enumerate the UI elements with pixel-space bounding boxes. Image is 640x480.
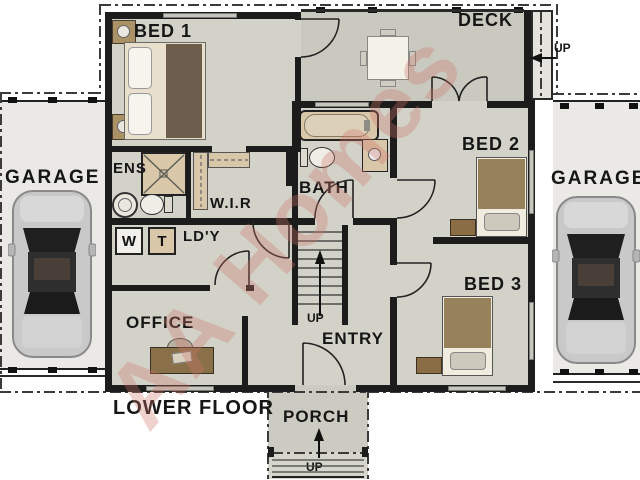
bed2-blanket xyxy=(478,159,525,209)
laundry-tub: T xyxy=(148,227,176,255)
deck-chair xyxy=(360,51,367,66)
up-label-porch-steps: UP xyxy=(306,461,323,473)
deck-table xyxy=(367,36,409,80)
deck-stair-strip xyxy=(531,10,553,100)
car-top-view-right xyxy=(552,194,640,371)
wall-ens-wir-divider xyxy=(186,152,191,222)
car-top-view-left xyxy=(8,188,96,365)
pier-post xyxy=(8,367,17,373)
pier-post xyxy=(629,103,638,109)
deck-chair xyxy=(409,51,416,66)
bed3-side-table xyxy=(416,357,442,374)
pier-post xyxy=(8,97,17,103)
window-bed3-rear xyxy=(448,386,506,391)
bed3-blanket xyxy=(444,298,491,348)
pier-post xyxy=(560,103,569,109)
bed1-blanket xyxy=(166,44,202,138)
wall-bed1-right-stub xyxy=(295,12,301,20)
window-bed1 xyxy=(163,13,237,18)
room-label-entry: ENTRY xyxy=(322,330,384,347)
wall-deck-bottom-right xyxy=(487,101,531,108)
window-bath xyxy=(315,102,369,107)
pier-post xyxy=(48,367,57,373)
porch-step-line xyxy=(272,452,366,454)
bed3-pillow xyxy=(450,352,486,370)
wall-bath-right xyxy=(390,101,397,178)
window-office xyxy=(146,386,214,391)
roofline-garage-right-top xyxy=(553,93,640,95)
roofline-left-edge xyxy=(0,92,2,391)
up-label-deck-stairs: UP xyxy=(554,42,571,54)
room-label-bed2: BED 2 xyxy=(462,135,520,153)
bath-tap xyxy=(364,120,370,131)
wall-ldy-office-divider xyxy=(105,285,210,291)
wall-outer-bottom-right xyxy=(356,385,535,392)
porch-jamb-left xyxy=(268,447,274,457)
room-label-wir: W.I.R xyxy=(210,196,252,211)
plan-title-lower-floor: LOWER FLOOR xyxy=(113,398,274,418)
pier-post xyxy=(88,97,97,103)
porch-outline-right xyxy=(367,387,369,479)
bed1-pillow xyxy=(128,47,152,89)
room-label-porch: PORCH xyxy=(283,408,349,425)
roofline-left-upper xyxy=(99,4,101,94)
bed1-pillow xyxy=(128,93,152,135)
porch-jamb-right xyxy=(362,447,368,457)
pier-post xyxy=(48,97,57,103)
bed2-pillow xyxy=(484,213,520,231)
deck-stair-rail-left xyxy=(531,10,533,100)
deck-stair-centerline xyxy=(540,12,542,96)
wall-stairs-top-a xyxy=(292,218,315,225)
deck-stair-cap-top xyxy=(531,10,553,12)
deck-chair xyxy=(380,29,396,36)
pier-post xyxy=(88,367,97,373)
washer-letter: W xyxy=(122,233,136,250)
bedside-lamp xyxy=(117,25,130,38)
pier-post xyxy=(595,103,604,109)
wall-ens-bottom xyxy=(105,218,292,225)
wall-bed1-bottom-a xyxy=(105,146,212,152)
wall-bed3-left xyxy=(390,297,397,385)
garage-left-bottom-line xyxy=(0,375,105,377)
room-label-bed1: BED 1 xyxy=(134,22,192,40)
roofline-garage-left-top xyxy=(0,92,100,94)
wardrobe-vertical xyxy=(193,152,208,210)
window-bed2 xyxy=(529,150,534,214)
ens-basin-bowl xyxy=(118,198,132,212)
roofline-top xyxy=(100,4,555,6)
tub-letter: T xyxy=(157,233,166,250)
room-label-bed3: BED 3 xyxy=(464,275,522,293)
window-bed3-side xyxy=(529,302,534,360)
washing-machine: W xyxy=(115,227,143,255)
bath-vanity-basin xyxy=(368,148,381,161)
ens-toilet-bowl xyxy=(140,194,164,215)
wall-bed2-left-lower xyxy=(390,218,397,265)
deck-edge-right xyxy=(524,10,531,101)
wall-office-door-jamb xyxy=(246,285,254,291)
ens-toilet-tank xyxy=(164,196,173,213)
wall-stairs-right xyxy=(342,225,348,325)
room-label-deck: DECK xyxy=(458,11,513,29)
wall-hall-stairs-left xyxy=(292,101,298,325)
wall-outer-left xyxy=(105,12,112,392)
room-label-office: OFFICE xyxy=(126,314,194,331)
room-label-garage-left: GARAGE xyxy=(5,168,100,187)
bathtub-inner xyxy=(304,114,370,137)
bed2-side-table xyxy=(450,219,476,236)
wall-bed2-bottom xyxy=(433,237,535,244)
deck-chair xyxy=(380,80,396,87)
room-label-ldy: LD'Y xyxy=(183,229,221,244)
deck-stair-rail-right xyxy=(551,10,553,100)
garage-right-bottom-line xyxy=(553,381,640,383)
wall-office-right xyxy=(242,316,248,385)
room-label-ens: ENS xyxy=(113,161,147,176)
bath-toilet-tank xyxy=(300,148,308,167)
room-label-garage-right: GARAGE xyxy=(551,169,640,188)
room-label-bath: BATH xyxy=(299,179,349,196)
floor-plan-canvas: W T xyxy=(0,0,640,480)
up-label-internal-stairs: UP xyxy=(307,312,324,324)
wardrobe-top xyxy=(208,152,250,168)
bath-toilet-bowl xyxy=(309,147,335,168)
shower xyxy=(141,152,187,196)
